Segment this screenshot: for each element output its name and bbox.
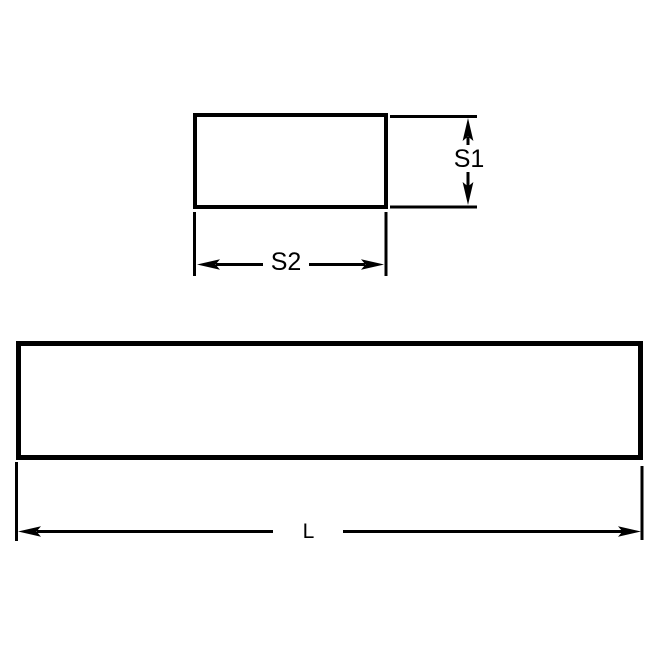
- cross-section-view: S1 S2: [195, 115, 485, 276]
- cross-section-rectangle: [195, 115, 386, 207]
- length-label: L: [303, 520, 315, 543]
- s2-dimension: S2: [195, 212, 387, 276]
- s2-label: S2: [271, 248, 302, 276]
- bar-rectangle: [19, 344, 641, 458]
- s1-label: S1: [454, 145, 485, 173]
- side-view: L: [17, 344, 643, 544]
- s1-dimension: S1: [390, 117, 484, 208]
- technical-drawing: S1 S2 L: [0, 0, 670, 670]
- length-dimension: L: [17, 462, 643, 543]
